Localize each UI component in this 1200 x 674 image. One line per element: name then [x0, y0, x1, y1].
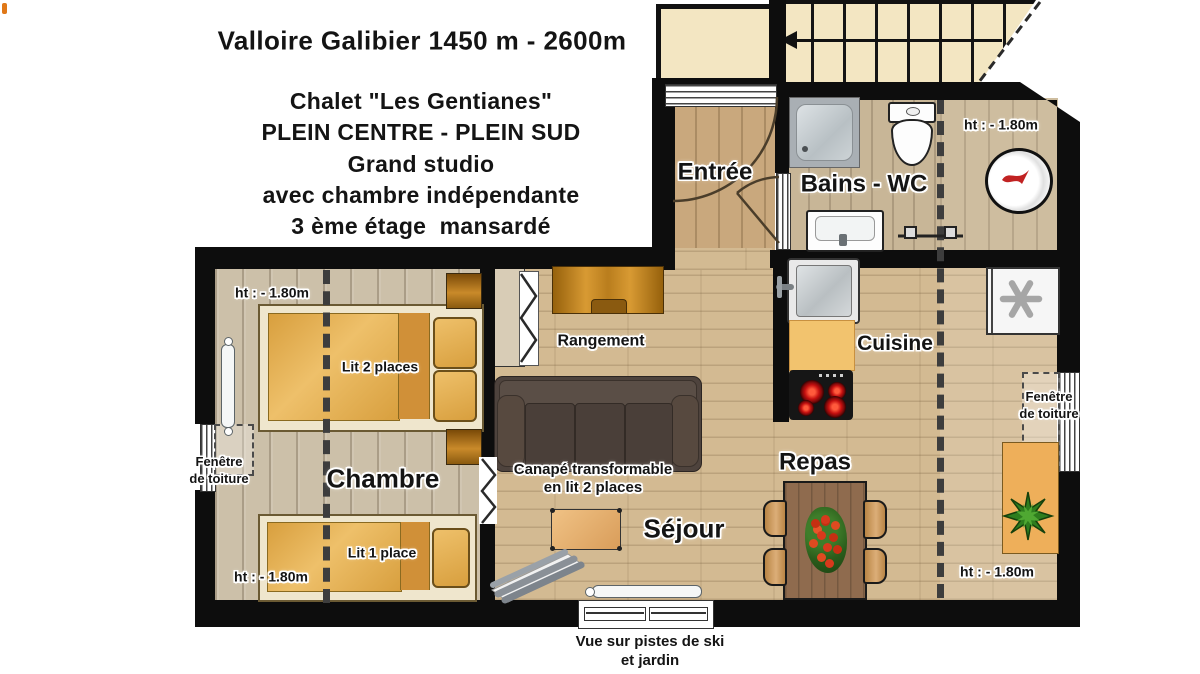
- towel-rail-icon: [898, 227, 963, 238]
- washing-machine-logo: [1002, 170, 1029, 184]
- bathroom-door-leaf: [737, 193, 779, 243]
- freezer-star-icon: [1003, 283, 1039, 314]
- ceiling-height-note: ht : - 1.80m: [960, 565, 1034, 580]
- ceiling-height-note: ht : - 1.80m: [234, 570, 308, 585]
- view-note-line2: et jardin: [621, 653, 679, 669]
- subtitle-line: Chalet "Les Gentianes": [290, 89, 552, 113]
- room-label-repas: Repas: [779, 449, 851, 474]
- floor-plan-page: Valloire Galibier 1450 m - 2600m Chalet …: [0, 0, 1200, 674]
- double-bed-label: Lit 2 places: [342, 360, 418, 375]
- roof-window-label: de toiture: [189, 472, 248, 486]
- single-bed-label: Lit 1 place: [348, 546, 416, 561]
- subtitle-line: avec chambre indépendante: [263, 183, 580, 207]
- skis-icon: [492, 552, 584, 602]
- room-label-rangement: Rangement: [557, 334, 644, 351]
- stair-cut-dashed-line: [979, 2, 1040, 82]
- subtitle-line: 3 ème étage mansardé: [291, 214, 550, 238]
- roof-window-label: Fenêtre: [196, 455, 243, 469]
- accordion-door-icon: [521, 274, 536, 362]
- plant-icon: [1004, 492, 1052, 540]
- roof-window-label: de toiture: [1019, 407, 1078, 421]
- room-label-bains-wc: Bains - WC: [801, 171, 928, 196]
- view-note-line1: Vue sur pistes de ski: [576, 634, 725, 650]
- room-label-sejour: Séjour: [644, 515, 725, 542]
- accordion-door-icon: [482, 459, 495, 523]
- subtitle-line: Grand studio: [348, 152, 495, 176]
- sofa-label-line2: en lit 2 places: [544, 480, 642, 496]
- roof-window-label: Fenêtre: [1026, 390, 1073, 404]
- ceiling-height-note: ht : - 1.80m: [235, 286, 309, 301]
- sofa-label-line1: Canapé transformable: [514, 462, 672, 478]
- room-label-cuisine: Cuisine: [857, 333, 933, 355]
- room-label-chambre: Chambre: [327, 465, 440, 492]
- room-label-entree: Entrée: [678, 159, 753, 184]
- ceiling-height-note: ht : - 1.80m: [964, 118, 1038, 133]
- page-title: Valloire Galibier 1450 m - 2600m: [218, 27, 627, 54]
- subtitle-line: PLEIN CENTRE - PLEIN SUD: [261, 120, 580, 144]
